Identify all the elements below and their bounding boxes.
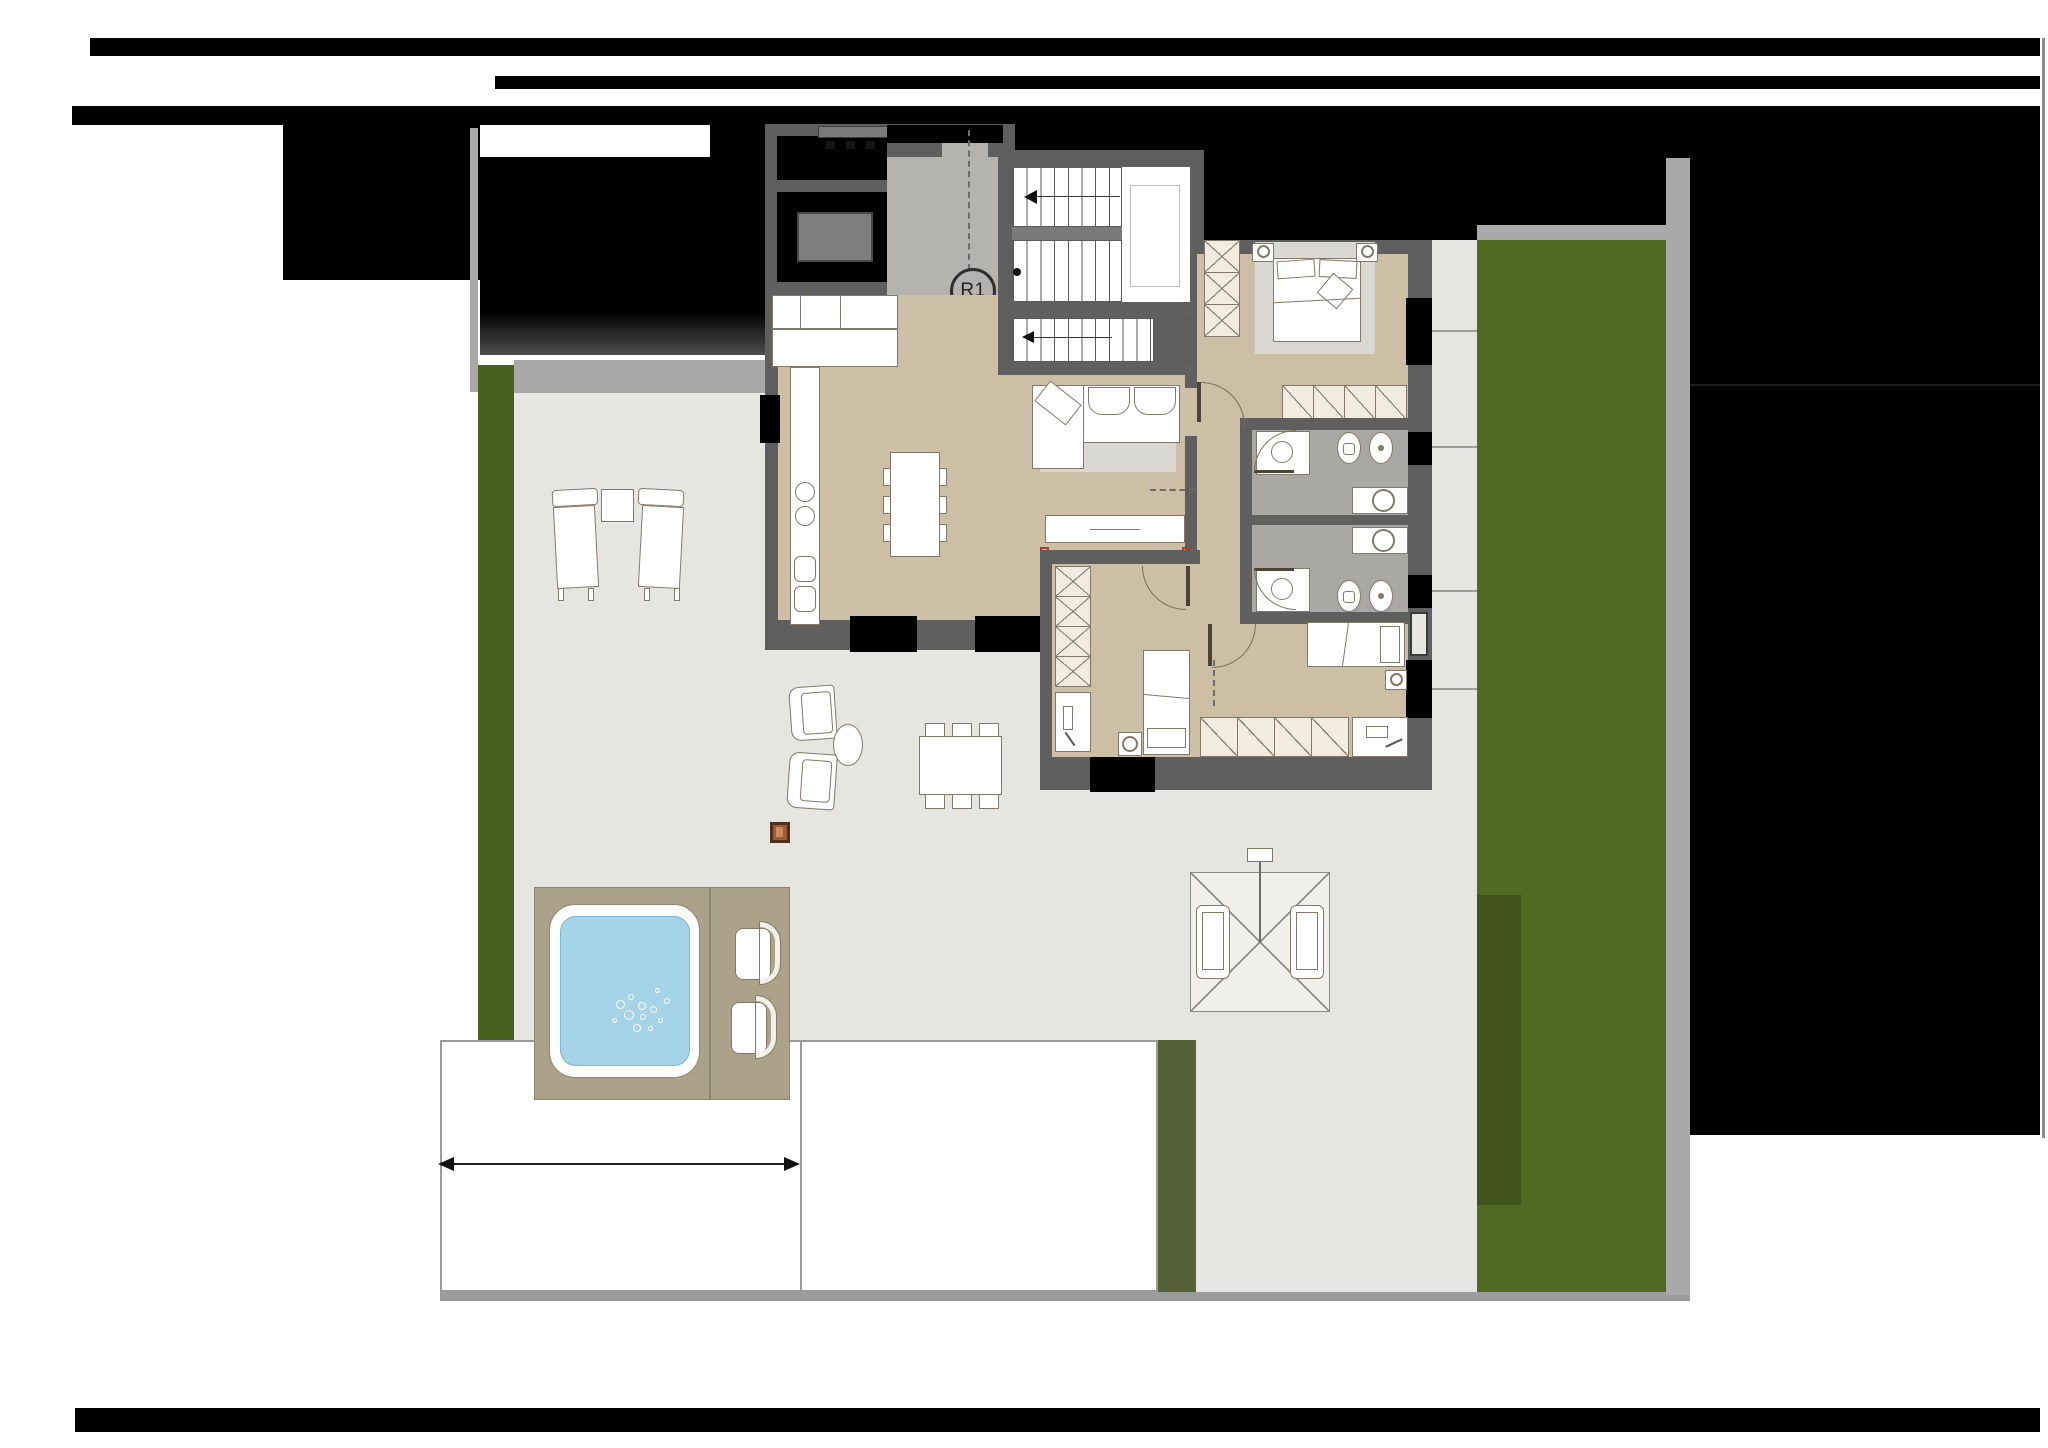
lawn-strip-west [478, 365, 514, 1040]
garage-door [818, 126, 890, 138]
hot-tub-water [560, 916, 690, 1066]
door-opening [1185, 388, 1197, 436]
washbasin-icon [1372, 489, 1395, 512]
escape-route-line [968, 130, 970, 270]
kitchen-counter-top [772, 295, 898, 329]
stair-winder [1154, 318, 1190, 362]
floor-plan-page: R1 [0, 0, 2048, 1448]
wardrobe-cell [1055, 566, 1091, 597]
terrace-east-strip [1432, 240, 1477, 400]
chair-leg-icon [674, 588, 680, 601]
stair-railing [1130, 185, 1180, 287]
bubble-icon [650, 1006, 657, 1013]
island-stool [939, 468, 947, 486]
washbasin-icon [1372, 529, 1395, 552]
above-landing [887, 125, 1003, 145]
door-leaf [1186, 566, 1190, 606]
pillow-icon [1147, 728, 1186, 748]
door-hinge-icon [826, 141, 835, 149]
lounge-chair-cushion [800, 759, 833, 803]
bubble-icon [616, 1000, 625, 1009]
bathroom-west-wall [1240, 430, 1252, 624]
wardrobe-cell [1311, 717, 1349, 757]
bubble-icon [648, 1026, 653, 1031]
desk-item [1366, 726, 1388, 738]
window-east [1406, 432, 1432, 465]
bubble-icon [640, 1014, 646, 1020]
retaining-wall-band [514, 360, 770, 393]
sideboard-divider [1090, 529, 1140, 530]
pillow-icon [1380, 626, 1400, 663]
wardrobe-cell [1282, 385, 1314, 420]
parasol-chair-cushion [1296, 912, 1318, 970]
redaction-bar [495, 76, 2040, 89]
chair-leg-icon [644, 588, 650, 601]
stair-south-wall [998, 362, 1204, 375]
window-sill-line [1432, 590, 1477, 592]
garden-wall-east [1666, 158, 1690, 1295]
sliding-door-south-1 [850, 616, 917, 652]
escape-route-line [1213, 660, 1215, 706]
stair-up-line [1034, 196, 1120, 197]
dining-chair [925, 794, 945, 809]
bubble-icon [624, 1010, 634, 1020]
wardrobe-cell [1204, 304, 1240, 337]
window-sill-line [1432, 330, 1477, 332]
page-edge-line [2042, 38, 2045, 1138]
desk-item [1063, 706, 1073, 730]
wardrobe-cell [1313, 385, 1345, 420]
deck-divider [709, 887, 711, 1100]
wardrobe-cell [1204, 240, 1240, 273]
toilet-lid-icon [1343, 443, 1355, 455]
dimension-arrow-left-icon [438, 1157, 454, 1171]
parasol-base [1247, 848, 1273, 862]
window-south [1090, 755, 1155, 792]
stair-newel-dot-icon [1013, 268, 1021, 276]
bubble-icon [638, 1002, 646, 1010]
lamp-icon [1361, 245, 1374, 258]
redaction-bar-bottom [75, 1408, 2040, 1432]
hedge-gray-strip [1158, 1040, 1196, 1292]
terrace-side-table [601, 489, 634, 522]
window-east-framed [1410, 612, 1428, 656]
door-hinge-icon [846, 141, 855, 149]
site-boundary-bottom [440, 1292, 1690, 1301]
hedge-lawn-edge [1477, 895, 1521, 1205]
redaction-block-right [1690, 125, 2040, 1135]
outdoor-dining-table [919, 736, 1002, 795]
wardrobe-cell [1274, 717, 1312, 757]
window-east [1406, 660, 1432, 718]
terrace-armchair [553, 505, 599, 589]
redaction-block-small [710, 125, 770, 159]
window-sill-line [1432, 446, 1477, 448]
door-hinge-icon [866, 141, 875, 149]
fire-pit-inner [776, 827, 783, 837]
counter-divider [840, 295, 841, 329]
chair-leg-icon [588, 588, 594, 601]
stair-flight-lower [1012, 240, 1122, 302]
west-window [760, 395, 780, 443]
lamp-icon [1390, 673, 1403, 686]
island-stool [883, 468, 891, 486]
bidet-tap-icon [1378, 445, 1384, 451]
bidet-tap-icon [1378, 593, 1384, 599]
terrace-armchair [638, 505, 684, 589]
garden-wall-top [1477, 225, 1667, 240]
stair-direction-arrow-icon [1022, 331, 1034, 343]
bathroom-mid-wall [1240, 515, 1410, 525]
bubble-icon [628, 994, 634, 1000]
wardrobe-cell [1237, 717, 1275, 757]
bubble-icon [655, 988, 660, 993]
lamp-icon [1122, 736, 1138, 752]
island-stool [883, 496, 891, 514]
sofa-cushion [1088, 387, 1130, 415]
counter-divider [800, 295, 801, 329]
appliance-icon [794, 556, 816, 582]
sink-basin-icon [795, 482, 815, 502]
bubble-icon [658, 1018, 663, 1023]
redaction-bar [72, 106, 2040, 125]
pillow-icon [1276, 259, 1315, 280]
island-stool [939, 524, 947, 542]
parasol-pole-icon [1259, 862, 1261, 942]
bubble-icon [633, 1024, 641, 1032]
sofa-cushion [1134, 387, 1176, 415]
kitchen-island [890, 452, 940, 557]
kitchen-peninsula [772, 329, 898, 367]
stairwell-bottom-wall [998, 305, 1204, 318]
toilet-lid-icon [1343, 591, 1355, 603]
redaction-block-top-right [1195, 125, 1690, 240]
redaction-block-left [283, 125, 480, 280]
lamp-icon [1257, 245, 1270, 258]
bedroom3-west-wall [1040, 550, 1052, 790]
lounge-chair-cushion [801, 691, 834, 735]
window-sill-line [1432, 688, 1477, 690]
redaction-bar [90, 38, 2040, 56]
wardrobe-cell [1344, 385, 1376, 420]
stair-up-line [1032, 337, 1112, 338]
island-stool [883, 524, 891, 542]
wardrobe-cell [1375, 385, 1407, 420]
stair-direction-arrow-icon [1024, 190, 1037, 204]
wardrobe-cell [1204, 272, 1240, 305]
wardrobe-cell [1200, 717, 1238, 757]
dimension-arrow-right-icon [784, 1157, 800, 1171]
dimension-line [452, 1163, 792, 1165]
chair-leg-icon [558, 588, 564, 601]
dining-chair [979, 794, 999, 809]
window-east [1406, 298, 1432, 365]
stair-mid-landing [1012, 227, 1122, 240]
wardrobe-cell [1055, 596, 1091, 627]
bubble-icon [664, 998, 670, 1004]
island-stool [939, 496, 947, 514]
window-sill-line-far [1690, 384, 2040, 386]
landing-door-opening [942, 143, 988, 157]
master-south-wall [1240, 418, 1410, 430]
kitchen-north-wall [765, 282, 887, 295]
wardrobe-cell [1055, 626, 1091, 657]
window-east [1406, 575, 1432, 608]
sink-basin-icon [795, 506, 815, 526]
driveway-divider [800, 1042, 802, 1290]
redaction-block-building-west [480, 157, 770, 355]
retaining-wall-vertical [470, 128, 478, 392]
redaction-above-stairs [1003, 125, 1195, 153]
bedroom3-north-wall [1040, 550, 1200, 564]
parasol-chair-cushion [1202, 912, 1224, 970]
elevator-box [797, 212, 873, 262]
wardrobe-cell [1055, 656, 1091, 687]
bubble-icon [612, 1018, 617, 1023]
dining-chair [952, 794, 972, 809]
appliance-icon [794, 586, 816, 612]
